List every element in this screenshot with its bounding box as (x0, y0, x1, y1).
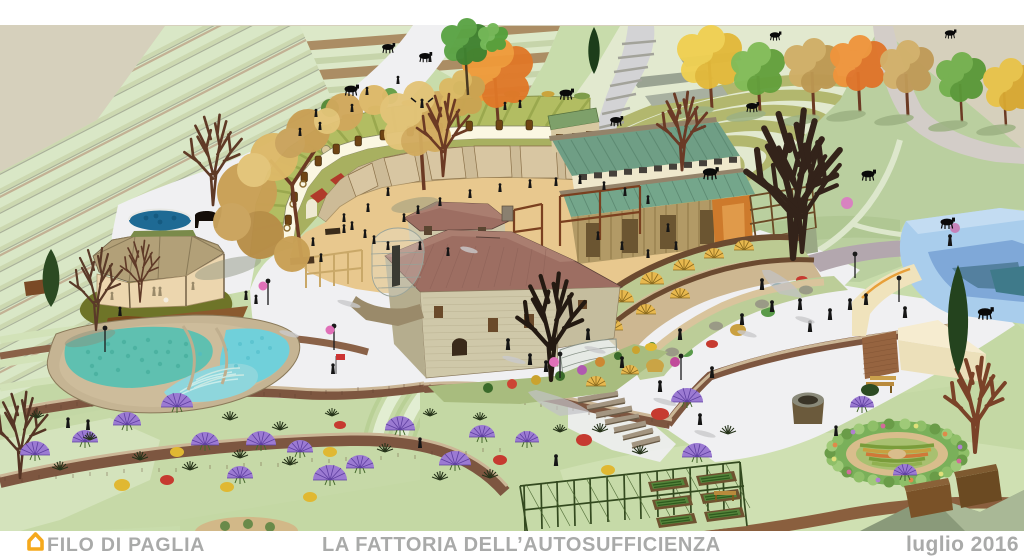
svg-text:LA FATTORIA DELL’AUTOSUFFICI: LA FATTORIA DELL’AUTOSUFFICIENZA (322, 534, 721, 556)
svg-text:luglio 2016: luglio 2016 (906, 533, 1019, 556)
svg-text:FILO DI PAGLIA: FILO DI PAGLIA (47, 534, 205, 556)
